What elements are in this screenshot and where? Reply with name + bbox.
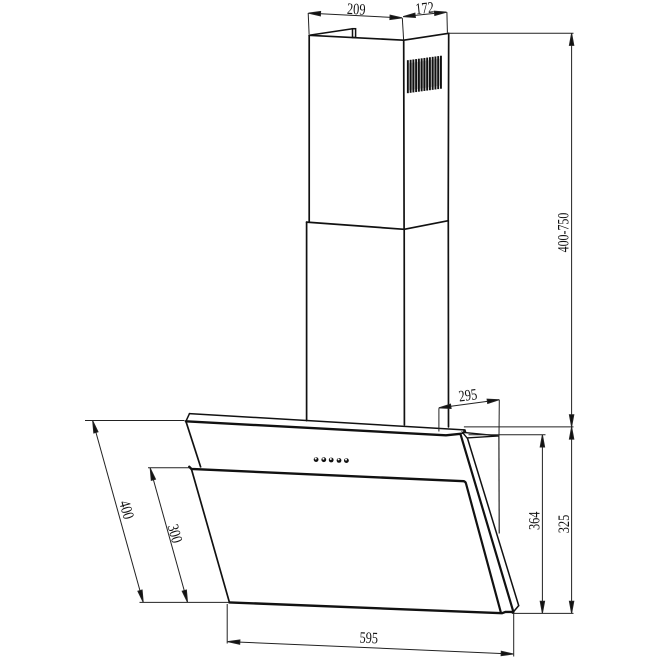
svg-text:400-750: 400-750 bbox=[556, 213, 573, 253]
svg-text:300: 300 bbox=[164, 523, 185, 545]
svg-text:595: 595 bbox=[359, 630, 378, 648]
svg-text:295: 295 bbox=[458, 386, 479, 405]
svg-text:172: 172 bbox=[415, 0, 435, 18]
svg-text:364: 364 bbox=[527, 512, 544, 531]
svg-text:209: 209 bbox=[347, 1, 366, 19]
svg-text:400: 400 bbox=[115, 499, 136, 521]
svg-text:325: 325 bbox=[556, 515, 573, 534]
